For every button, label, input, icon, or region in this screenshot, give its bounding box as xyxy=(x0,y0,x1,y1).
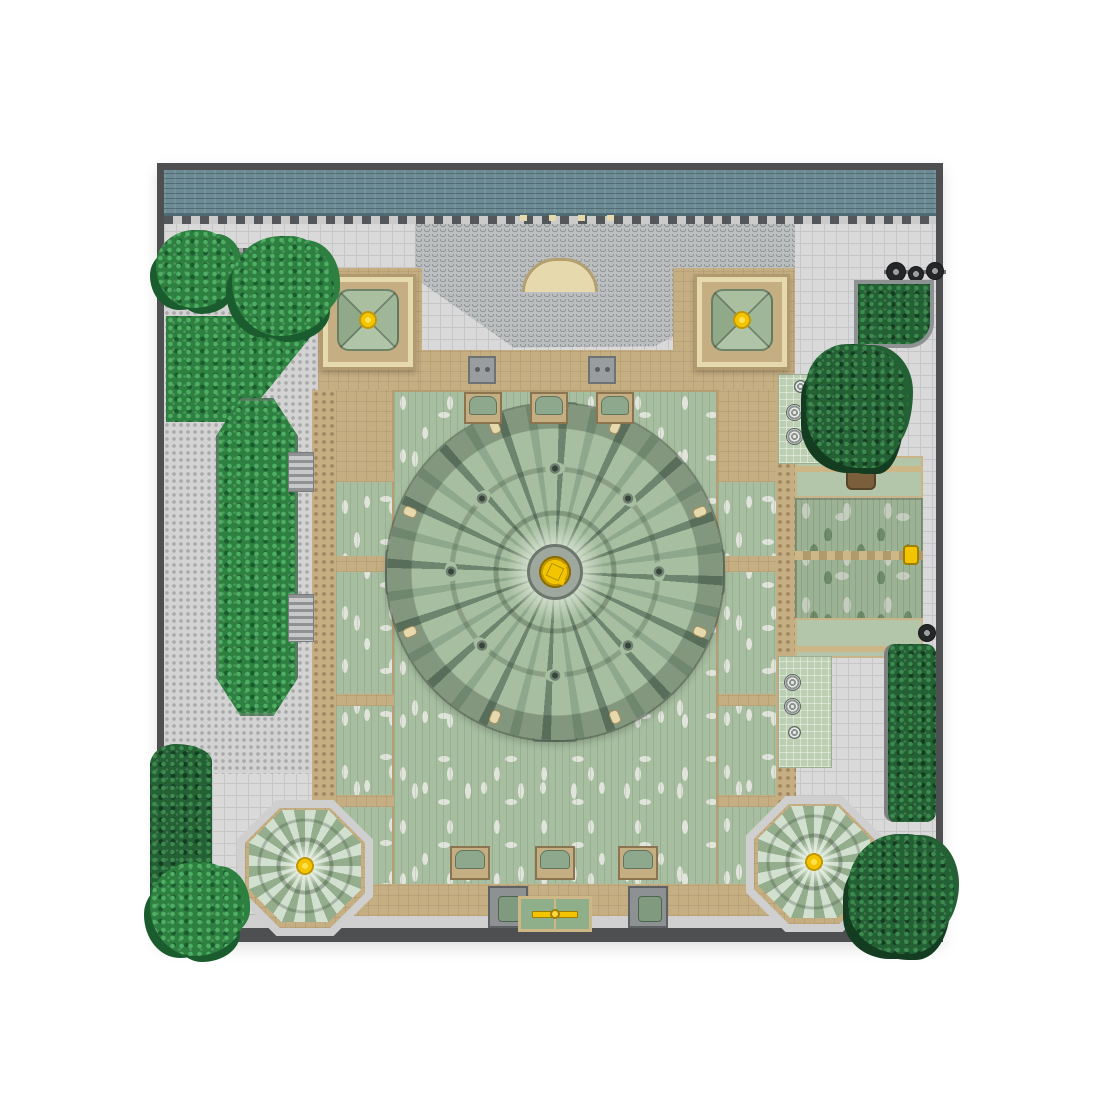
north-wall-pier-west xyxy=(468,356,496,384)
tree-northwest-small xyxy=(156,230,236,308)
vent-fan xyxy=(784,674,801,691)
pavilion-finial xyxy=(732,310,752,330)
vent-fan xyxy=(784,698,801,715)
dome-dormer xyxy=(653,562,666,582)
east-corridor-ridge xyxy=(718,694,776,706)
north-courtyard-gate xyxy=(464,392,502,424)
central-dome-group xyxy=(387,404,723,740)
cart-wheel xyxy=(926,262,944,280)
west-garden-hedge-hill xyxy=(216,398,298,716)
north-courtyard-gate xyxy=(596,392,634,424)
tree-southwest-corner xyxy=(150,862,244,956)
vent-fan xyxy=(786,428,803,445)
dome-dormer xyxy=(545,669,565,682)
west-corridor-ridge xyxy=(336,694,394,706)
south-courtyard-gate xyxy=(618,846,658,880)
planter-hedge-northeast xyxy=(854,280,934,348)
north-wall-tile-roof xyxy=(164,170,936,216)
north-wall-pier-east xyxy=(588,356,616,384)
southwest-corner-tower xyxy=(235,798,375,938)
tree-southeast-corner xyxy=(848,834,954,954)
north-inner-wall xyxy=(420,350,675,392)
dome-dormer xyxy=(545,462,565,475)
dome-dormer xyxy=(445,562,458,582)
northwest-corner-pavilion xyxy=(320,274,416,370)
main-gate-doors xyxy=(518,896,592,932)
south-courtyard-gate xyxy=(450,846,490,880)
cart-wheel xyxy=(918,624,936,642)
gatehouse-ridge-dots xyxy=(520,215,630,221)
east-hall-ridge-finial xyxy=(903,545,919,565)
tower-finial xyxy=(803,851,825,873)
lego-temple-complex-aerial-photo xyxy=(0,0,1100,1100)
pavilion-finial xyxy=(358,310,378,330)
south-courtyard-gate xyxy=(535,846,575,880)
west-corridor-ridge xyxy=(336,470,394,482)
north-courtyard-gate xyxy=(530,392,568,424)
cart-wheel xyxy=(886,262,906,282)
garden-stairs-north xyxy=(288,452,314,492)
vent-fan xyxy=(788,726,801,739)
ivy-hedge-east xyxy=(884,644,936,822)
tower-finial xyxy=(294,855,316,877)
south-wall-pavilion-east xyxy=(628,886,668,928)
tree-northwest-large xyxy=(232,236,334,336)
west-corridor-north-terrace xyxy=(336,390,394,472)
tree-row-east xyxy=(806,344,908,468)
east-axis-walk xyxy=(718,556,776,572)
northeast-corner-pavilion xyxy=(694,274,790,370)
east-corridor-ridge xyxy=(718,470,776,482)
gate-knob xyxy=(550,909,560,919)
garden-stairs-south xyxy=(288,594,314,642)
east-corridor-north-terrace xyxy=(718,390,776,472)
